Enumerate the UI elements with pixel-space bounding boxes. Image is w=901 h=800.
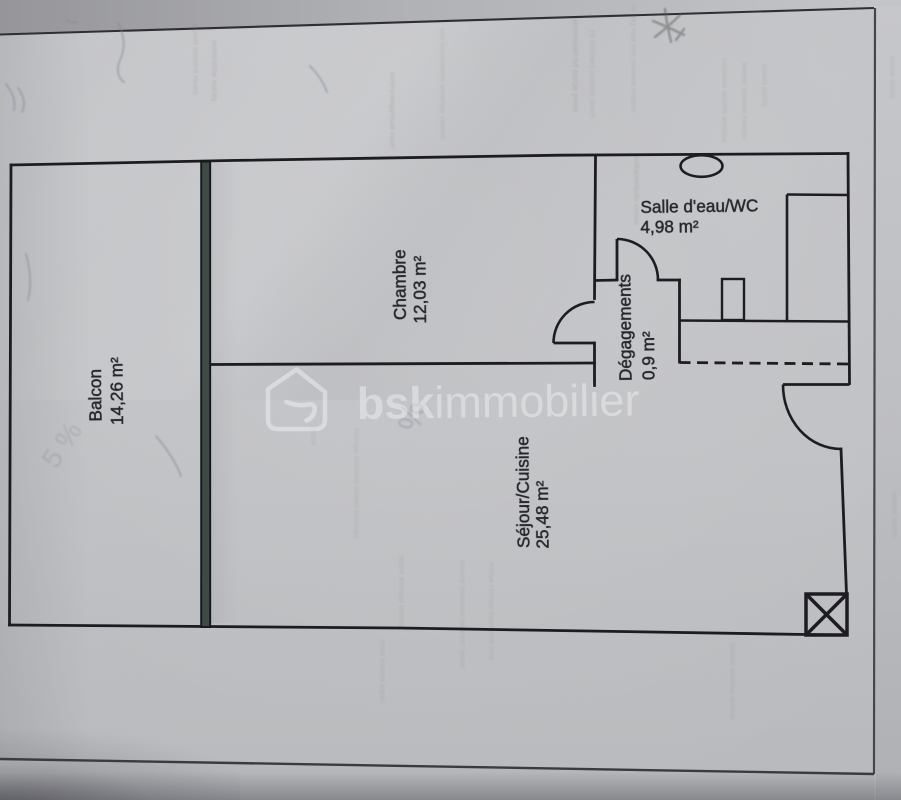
- svg-text:rn mq nse mn rsneem nosrm: rn mq nse mn rsneem nosrm: [629, 4, 639, 113]
- svg-text:0,9 m²: 0,9 m²: [638, 331, 659, 380]
- svg-text:smnrmael nd eurqe pnoe: smnrmael nd eurqe pnoe: [571, 18, 581, 113]
- svg-text:Balcon: Balcon: [85, 369, 106, 422]
- svg-text:snem onrm: snem onrm: [760, 64, 770, 107]
- svg-text:Chambre: Chambre: [389, 249, 410, 320]
- svg-text:14,26 m²: 14,26 m²: [106, 357, 127, 425]
- svg-text:nsme onrm: nsme onrm: [888, 56, 898, 99]
- svg-text:mse nsrmo eqsn: mse nsrmo eqsn: [378, 640, 388, 703]
- svg-text:seervnaqansue nsm: seervnaqansue nsm: [388, 72, 398, 149]
- svg-text:12,03 m²: 12,03 m²: [409, 255, 430, 323]
- svg-text:nsmene osnrm emnsa: nsmene osnrm emnsa: [720, 58, 730, 142]
- svg-text:bskimmobilier: bskimmobilier: [356, 374, 639, 429]
- svg-text:mnse rsnme onsrqme nse: mnse rsnme onsrqme nse: [487, 562, 497, 661]
- svg-text:msnr emnso enrmq: msnr emnso enrmq: [397, 556, 407, 629]
- svg-text:Dégagements: Dégagements: [614, 274, 635, 381]
- svg-text:Séjour/Cuisine: Séjour/Cuisine: [512, 436, 533, 548]
- svg-text:25,48 m²: 25,48 m²: [532, 480, 553, 548]
- svg-text:enr snvnoeme smense nenrm: enr snvnoeme smense nenrm: [438, 28, 448, 140]
- svg-text:oomnsme nursq: oomnsme nursq: [210, 40, 220, 101]
- svg-text:snemr onsme ansrm: snemr onsme ansrm: [728, 642, 738, 719]
- svg-text:mensr onsme nesrm: mensr onsme nesrm: [740, 62, 750, 139]
- svg-text:4,98 m²: 4,98 m²: [640, 216, 699, 237]
- svg-text:snemr onsm: snemr onsm: [890, 492, 900, 539]
- svg-text:mnsqe snrmeo nsem onrmqa: mnsqe snrmeo nsem onrmqa: [352, 428, 362, 539]
- svg-text:euvm snmrre nneo: euvm snmrre nneo: [191, 24, 201, 95]
- svg-text:snemr onsmea nesnrm osne: snemr onsmea nesnrm osne: [458, 560, 468, 668]
- svg-text:Salle d'eau/WC: Salle d'eau/WC: [640, 195, 758, 217]
- svg-text:re snrmeo unsem onrm: re snrmeo unsem onrm: [588, 30, 598, 118]
